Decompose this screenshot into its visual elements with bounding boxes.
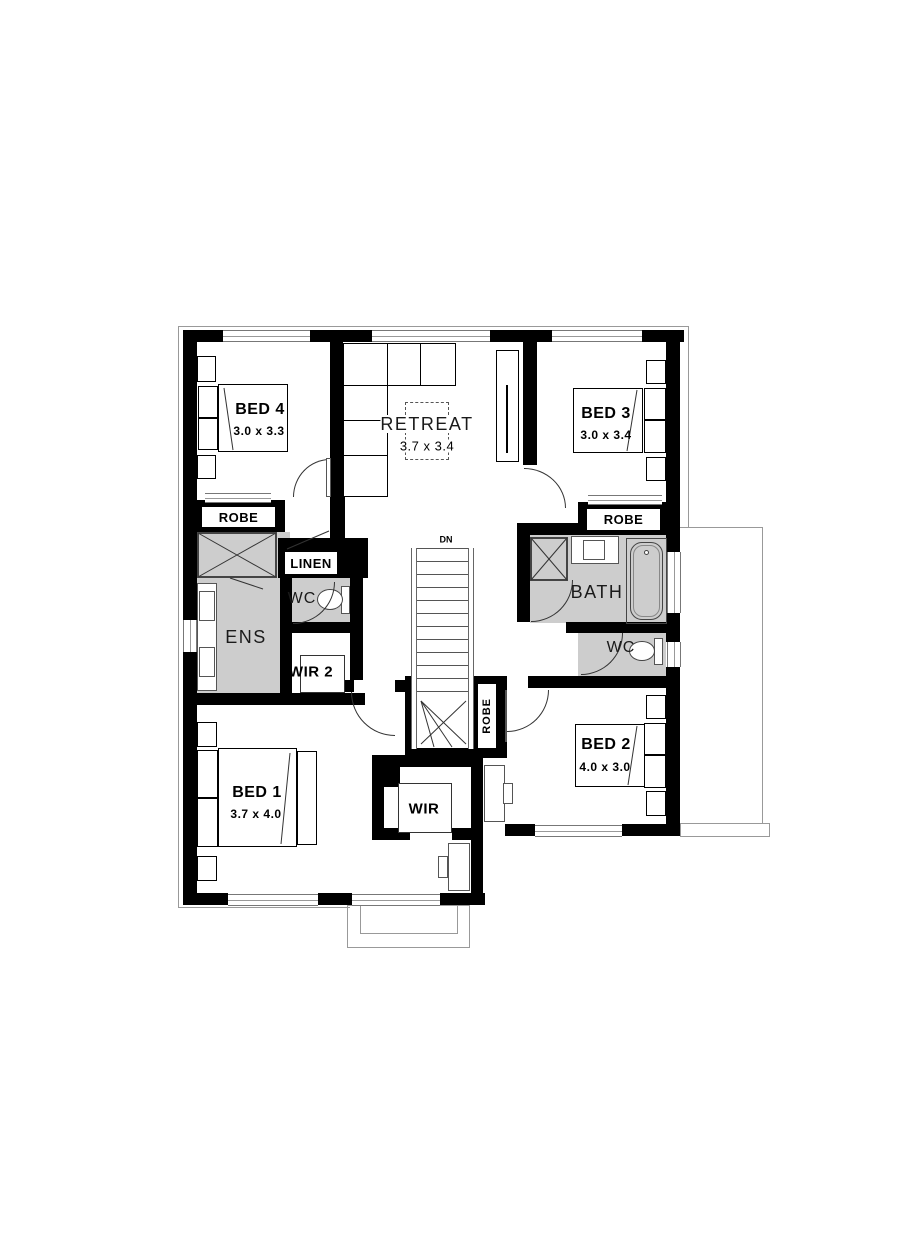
sofa-section-horizontal xyxy=(387,343,456,386)
eave-line-right xyxy=(762,527,763,824)
wall xyxy=(666,613,680,642)
bed-headboard-divider xyxy=(645,419,665,421)
roof-outline-right xyxy=(688,326,689,528)
roof-outline-top xyxy=(178,326,689,327)
wall xyxy=(452,828,483,840)
bed-headboard-divider xyxy=(198,797,217,799)
wall xyxy=(183,330,197,505)
sofa-divider xyxy=(344,385,387,386)
wall xyxy=(310,330,372,342)
nightstand xyxy=(646,791,666,816)
sofa-divider xyxy=(420,344,421,385)
toilet-tank xyxy=(654,638,663,665)
wall xyxy=(350,578,363,622)
retreat-dims: 3.7 x 3.4 xyxy=(400,440,454,453)
wall xyxy=(528,676,668,688)
hall-cabinet-line xyxy=(506,385,508,453)
robe-left-label-box: ROBE xyxy=(200,505,277,529)
bath-label: BATH xyxy=(571,583,624,601)
wall xyxy=(350,622,363,680)
wall xyxy=(183,693,365,705)
wall xyxy=(183,652,197,905)
bed4-dims: 3.0 x 3.3 xyxy=(233,425,284,437)
bed2-label: BED 2 xyxy=(581,737,631,753)
robe-right-label: ROBE xyxy=(604,512,644,527)
robe-hall-label: ROBE xyxy=(481,698,493,734)
door-arc-bed3 xyxy=(524,468,566,508)
eave-line-top xyxy=(680,527,763,528)
door-arc-bed2 xyxy=(507,690,549,732)
door-arc-bed4 xyxy=(293,459,330,497)
robe-sliding-door xyxy=(205,493,271,503)
wall xyxy=(471,836,483,905)
ens-label: ENS xyxy=(225,628,267,646)
linen-label-box: LINEN xyxy=(283,550,339,576)
bed-bench xyxy=(297,751,317,845)
porch-outline-inner xyxy=(360,905,458,934)
wall xyxy=(318,893,352,905)
nightstand xyxy=(646,360,666,384)
window xyxy=(552,330,642,342)
nightstand xyxy=(197,856,217,881)
wall xyxy=(666,690,680,836)
sink xyxy=(583,540,605,560)
desk xyxy=(484,765,505,822)
nightstand xyxy=(197,455,216,479)
floor-plan: DN ROBE ROBE LINEN ROBE xyxy=(0,0,901,1245)
wall xyxy=(490,330,552,342)
bed-mattress xyxy=(218,384,288,452)
bed2-dims: 4.0 x 3.0 xyxy=(579,761,630,773)
nightstand xyxy=(646,695,666,719)
bed4-label: BED 4 xyxy=(235,402,285,418)
bed1-dims: 3.7 x 4.0 xyxy=(230,808,281,820)
wall xyxy=(517,535,530,622)
roof-outline-left xyxy=(178,326,179,908)
bathtub-inner2 xyxy=(633,545,660,617)
desk-chair xyxy=(438,856,448,878)
robe-sliding-door xyxy=(588,495,662,505)
wall xyxy=(666,505,680,552)
sink xyxy=(199,647,215,677)
robe-left-label: ROBE xyxy=(219,510,259,525)
bathtub-drain xyxy=(644,550,649,555)
window xyxy=(228,894,318,906)
bed-mattress xyxy=(575,724,645,787)
robe-right-label-box: ROBE xyxy=(585,507,662,532)
wc-right-label: WC xyxy=(607,640,636,656)
wall xyxy=(523,342,537,465)
nightstand xyxy=(646,457,666,481)
window xyxy=(535,825,622,837)
stair-treads xyxy=(417,548,468,700)
bed3-dims: 3.0 x 3.4 xyxy=(580,429,631,441)
nightstand xyxy=(197,356,216,382)
window xyxy=(667,642,681,667)
bed-headboard-divider xyxy=(199,417,217,419)
ground-line-left xyxy=(178,907,350,908)
stair-direction-label: DN xyxy=(440,536,453,545)
nightstand xyxy=(197,722,217,747)
desk xyxy=(448,843,470,891)
wall xyxy=(666,342,680,505)
shower xyxy=(530,537,568,581)
desk-chair xyxy=(503,783,513,804)
wall xyxy=(330,342,343,497)
wall xyxy=(642,330,684,342)
window xyxy=(667,552,681,613)
bed3-label: BED 3 xyxy=(581,406,631,422)
door-arc-bed1 xyxy=(351,692,395,736)
sink xyxy=(199,591,215,621)
door-leaf-bed4 xyxy=(326,458,331,497)
wall xyxy=(666,667,680,690)
door-leaf-bed2 xyxy=(505,690,507,742)
window xyxy=(372,330,490,342)
window xyxy=(352,894,440,906)
sofa-divider xyxy=(344,455,387,456)
wall xyxy=(622,824,680,836)
bed1-label: BED 1 xyxy=(232,785,282,801)
wall xyxy=(183,893,228,905)
robe-hall-box: ROBE xyxy=(476,682,498,750)
shower xyxy=(197,532,277,578)
retreat-label: RETREAT xyxy=(380,415,473,433)
wir2-label: WIR 2 xyxy=(289,665,333,680)
wall xyxy=(517,523,579,535)
wall xyxy=(395,680,405,692)
wall xyxy=(471,755,483,836)
wall xyxy=(505,824,535,836)
stair-rail-right xyxy=(468,548,474,749)
bed-headboard-divider xyxy=(645,754,665,756)
window xyxy=(223,330,310,342)
wc-left-label: WC xyxy=(288,591,317,607)
eave-band xyxy=(680,823,770,837)
wir-label: WIR xyxy=(407,801,442,818)
window xyxy=(183,620,197,652)
linen-label: LINEN xyxy=(290,556,332,571)
